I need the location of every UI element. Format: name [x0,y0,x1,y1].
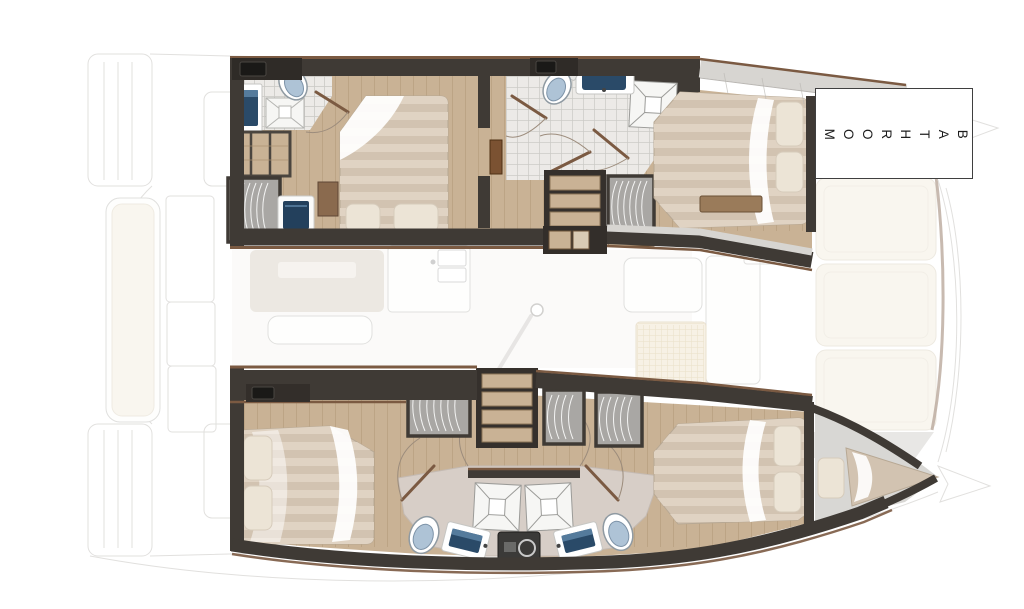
port-hull [228,58,906,271]
pillow [346,204,380,232]
saloon-table [250,250,384,312]
bathroom-label: BATHROOM [818,127,970,141]
port-aft-bed [340,96,448,238]
catamaran-floorplan: BATHROOM [0,0,1024,609]
galley-sink [438,250,466,266]
starboard-bow-tip [938,466,990,502]
bathroom-annotation-box: BATHROOM [815,88,973,179]
pillow [776,102,803,146]
starboard-stairs [476,368,538,448]
pillow [774,426,801,466]
shower [525,483,573,531]
port-fwd-bed [654,92,808,228]
cabin-door [490,140,502,174]
pillow [244,486,272,530]
starboard-fwd-bed [654,418,806,524]
port-entry-box [543,226,607,254]
starboard-locker-b [596,392,642,446]
pillow [244,436,272,480]
aft-cockpit [106,92,244,518]
starboard-aft-bed [240,426,374,544]
fwd-door-panel [706,256,760,384]
port-nightstand [318,182,338,216]
starboard-locker-a [544,390,584,444]
shower-drain [266,98,304,128]
pillow [818,458,844,498]
bed-foot-bench [700,196,762,212]
saloon-bench [268,316,372,344]
pillow [774,472,801,512]
pillow [776,152,803,192]
wall-stub [478,176,490,228]
shower [473,483,521,531]
port-tv-cabinet [278,196,314,234]
pillow [394,204,438,232]
fwd-cockpit-bench [624,258,702,312]
